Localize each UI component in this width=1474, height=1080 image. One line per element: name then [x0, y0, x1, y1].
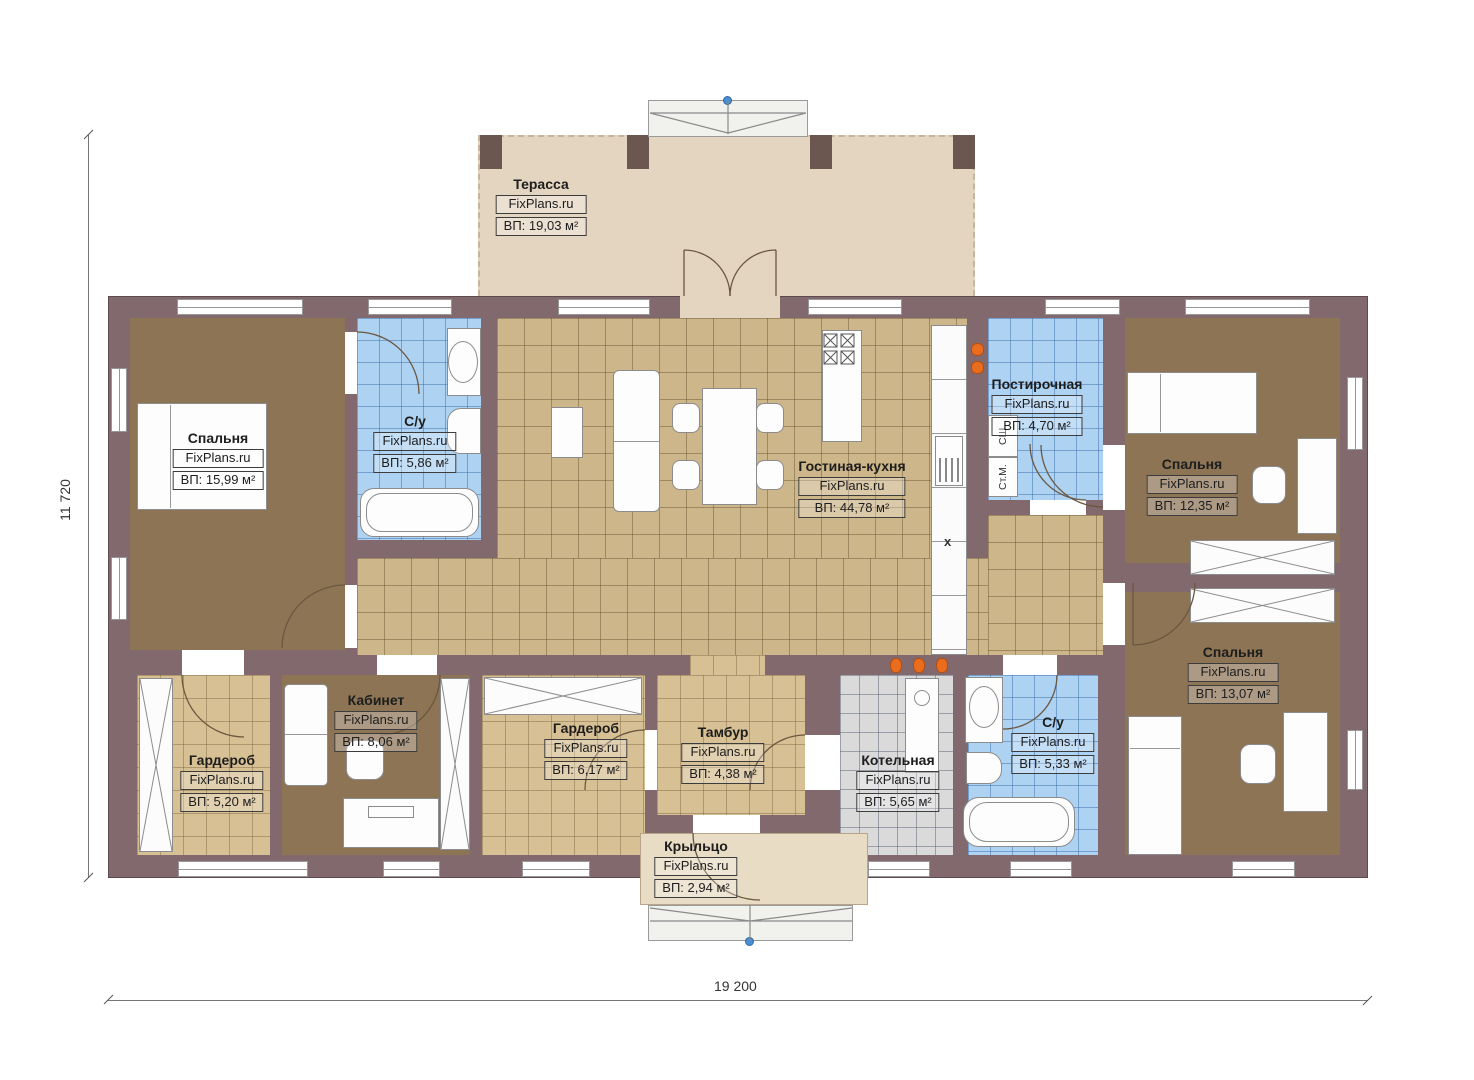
chair — [1252, 466, 1286, 504]
window — [111, 557, 127, 620]
desk — [1297, 438, 1337, 534]
washing-machine: Ст.М. — [988, 457, 1018, 497]
bathtub-inner — [366, 493, 473, 532]
window — [111, 368, 127, 432]
terrace-pillar — [480, 135, 502, 169]
room-area: ВП: 4,70 м² — [992, 417, 1083, 436]
wardrobe-unit — [484, 677, 642, 715]
north-marker-dot-bottom — [745, 937, 754, 946]
room-name: Котельная — [856, 752, 939, 768]
room-area: ВП: 12,35 м² — [1147, 497, 1238, 516]
room-label-porch: Крыльцо FixPlans.ru ВП: 2,94 м² — [654, 838, 737, 898]
chair — [672, 403, 700, 433]
room-name: Спальня — [1147, 456, 1238, 472]
boiler-valve-icon — [890, 658, 902, 673]
sink-icon — [969, 686, 999, 728]
room-label-terrace: Терасса FixPlans.ru ВП: 19,03 м² — [496, 176, 587, 236]
door-opening-wardrobe-middle — [645, 730, 657, 790]
hallway-floor-right — [988, 515, 1103, 655]
office-sofa — [284, 684, 328, 786]
floor-plan: х СШ Ст.М. 11 720 19 200 — [0, 0, 1474, 1080]
heater-icon — [971, 361, 984, 374]
room-area: ВП: 4,38 м² — [681, 765, 764, 784]
brand-watermark: FixPlans.ru — [173, 449, 264, 468]
brand-watermark: FixPlans.ru — [373, 432, 456, 451]
window — [1010, 861, 1072, 877]
room-label-bedroom-top-right: Спальня FixPlans.ru ВП: 12,35 м² — [1147, 456, 1238, 516]
desk — [1283, 712, 1328, 812]
room-name: Гардероб — [544, 720, 627, 736]
room-area: ВП: 8,06 м² — [334, 733, 417, 752]
room-name: Тамбур — [681, 724, 764, 740]
toilet-icon — [966, 752, 1002, 784]
room-area: ВП: 2,94 м² — [654, 879, 737, 898]
dimension-height-label: 11 720 — [57, 479, 73, 521]
window — [383, 861, 440, 877]
door-opening-bedroom-bottom-right — [1103, 583, 1125, 645]
keyboard-icon — [368, 806, 414, 818]
terrace-pillar — [953, 135, 975, 169]
brand-watermark: FixPlans.ru — [334, 711, 417, 730]
door-opening-terrace — [680, 296, 780, 318]
boiler-valve-icon — [936, 658, 948, 673]
room-label-bathroom-top: С/у FixPlans.ru ВП: 5,86 м² — [373, 413, 456, 473]
chair — [756, 460, 784, 490]
bed-pillow-line — [1160, 374, 1161, 432]
brand-watermark: FixPlans.ru — [856, 771, 939, 790]
sofa-cushion-line — [285, 734, 327, 735]
room-area: ВП: 5,86 м² — [373, 454, 456, 473]
bed-pillow-line — [1130, 748, 1180, 749]
window — [558, 299, 650, 315]
door-opening-porch — [693, 815, 760, 833]
window — [368, 299, 452, 315]
room-area: ВП: 5,65 м² — [856, 793, 939, 812]
bed-pillow-line — [170, 405, 171, 508]
room-label-living-kitchen: Гостиная-кухня FixPlans.ru ВП: 44,78 м² — [798, 458, 905, 518]
wardrobe-unit — [440, 678, 470, 850]
brand-watermark: FixPlans.ru — [544, 739, 627, 758]
room-label-wardrobe-middle: Гардероб FixPlans.ru ВП: 6,17 м² — [544, 720, 627, 780]
brand-watermark: FixPlans.ru — [798, 477, 905, 496]
room-label-laundry: Постирочная FixPlans.ru ВП: 4,70 м² — [992, 376, 1083, 436]
brand-watermark: FixPlans.ru — [654, 857, 737, 876]
room-name: С/у — [373, 413, 456, 429]
room-area: ВП: 6,17 м² — [544, 761, 627, 780]
washer-label: Ст.М. — [989, 458, 1017, 496]
room-area: ВП: 5,33 м² — [1011, 755, 1094, 774]
entrance-steps-top — [648, 100, 808, 137]
passage-vestibule — [690, 655, 765, 675]
boiler-valve-icon — [913, 658, 925, 673]
bed — [1128, 716, 1182, 855]
room-label-bedroom-left: Спальня FixPlans.ru ВП: 15,99 м² — [173, 430, 264, 490]
dimension-width-label: 19 200 — [714, 978, 757, 994]
heater-icon — [971, 343, 984, 356]
brand-watermark: FixPlans.ru — [496, 195, 587, 214]
window — [177, 299, 303, 315]
dimension-line-height — [88, 135, 89, 878]
room-label-wardrobe-left: Гардероб FixPlans.ru ВП: 5,20 м² — [180, 752, 263, 812]
room-label-office: Кабинет FixPlans.ru ВП: 8,06 м² — [334, 692, 417, 752]
kitchen-island — [822, 330, 862, 442]
entrance-steps-bottom — [648, 905, 853, 941]
door-opening-boiler — [805, 735, 840, 790]
door-opening-wardrobe-left — [182, 650, 244, 675]
window — [1185, 299, 1310, 315]
door-opening-bedroom-left — [345, 585, 357, 648]
chair — [1240, 744, 1276, 784]
room-area: ВП: 15,99 м² — [173, 471, 264, 490]
room-label-bedroom-bottom-right: Спальня FixPlans.ru ВП: 13,07 м² — [1188, 644, 1279, 704]
sofa-cushion-line — [614, 441, 659, 442]
dining-table — [702, 388, 757, 505]
kitchen-sink-drainer — [939, 458, 959, 482]
room-name: Крыльцо — [654, 838, 737, 854]
door-opening-office — [377, 655, 437, 675]
sink-icon — [448, 341, 478, 383]
tv-stand — [551, 407, 583, 458]
wardrobe-unit — [1190, 540, 1335, 575]
brand-watermark: FixPlans.ru — [180, 771, 263, 790]
room-area: ВП: 5,20 м² — [180, 793, 263, 812]
room-area: ВП: 19,03 м² — [496, 217, 587, 236]
wardrobe-unit — [1190, 588, 1335, 623]
window — [1347, 730, 1363, 790]
brand-watermark: FixPlans.ru — [1147, 475, 1238, 494]
room-label-boiler-room: Котельная FixPlans.ru ВП: 5,65 м² — [856, 752, 939, 812]
room-area: ВП: 44,78 м² — [798, 499, 905, 518]
terrace-pillar — [627, 135, 649, 169]
door-opening-laundry — [1030, 500, 1086, 515]
brand-watermark: FixPlans.ru — [992, 395, 1083, 414]
brand-watermark: FixPlans.ru — [1188, 663, 1279, 682]
terrace-pillar — [810, 135, 832, 169]
chair — [672, 460, 700, 490]
bathtub-inner — [969, 802, 1069, 842]
room-label-vestibule: Тамбур FixPlans.ru ВП: 4,38 м² — [681, 724, 764, 784]
window — [1045, 299, 1120, 315]
hob-mark: х — [944, 534, 951, 549]
room-name: Кабинет — [334, 692, 417, 708]
wardrobe-unit — [139, 678, 173, 852]
north-marker-dot-top — [723, 96, 732, 105]
room-name: Постирочная — [992, 376, 1083, 392]
room-name: Спальня — [1188, 644, 1279, 660]
window — [522, 861, 590, 877]
brand-watermark: FixPlans.ru — [1011, 733, 1094, 752]
dimension-line-width — [108, 1000, 1368, 1001]
window — [178, 861, 308, 877]
room-name: Гостиная-кухня — [798, 458, 905, 474]
kitchen-counter — [931, 325, 967, 655]
window — [808, 299, 902, 315]
door-opening-bathroom-top — [345, 332, 357, 394]
room-name: Терасса — [496, 176, 587, 192]
chair — [756, 403, 784, 433]
room-name: Спальня — [173, 430, 264, 446]
bed — [1127, 372, 1257, 434]
room-name: Гардероб — [180, 752, 263, 768]
room-area: ВП: 13,07 м² — [1188, 685, 1279, 704]
door-opening-bathroom-bottom — [1003, 655, 1057, 675]
window — [1347, 377, 1363, 450]
brand-watermark: FixPlans.ru — [681, 743, 764, 762]
window — [1232, 861, 1295, 877]
room-label-bathroom-bottom: С/у FixPlans.ru ВП: 5,33 м² — [1011, 714, 1094, 774]
room-name: С/у — [1011, 714, 1094, 730]
boiler-dial — [914, 690, 930, 706]
door-opening-bedroom-top-right — [1103, 445, 1125, 510]
window — [868, 861, 930, 877]
